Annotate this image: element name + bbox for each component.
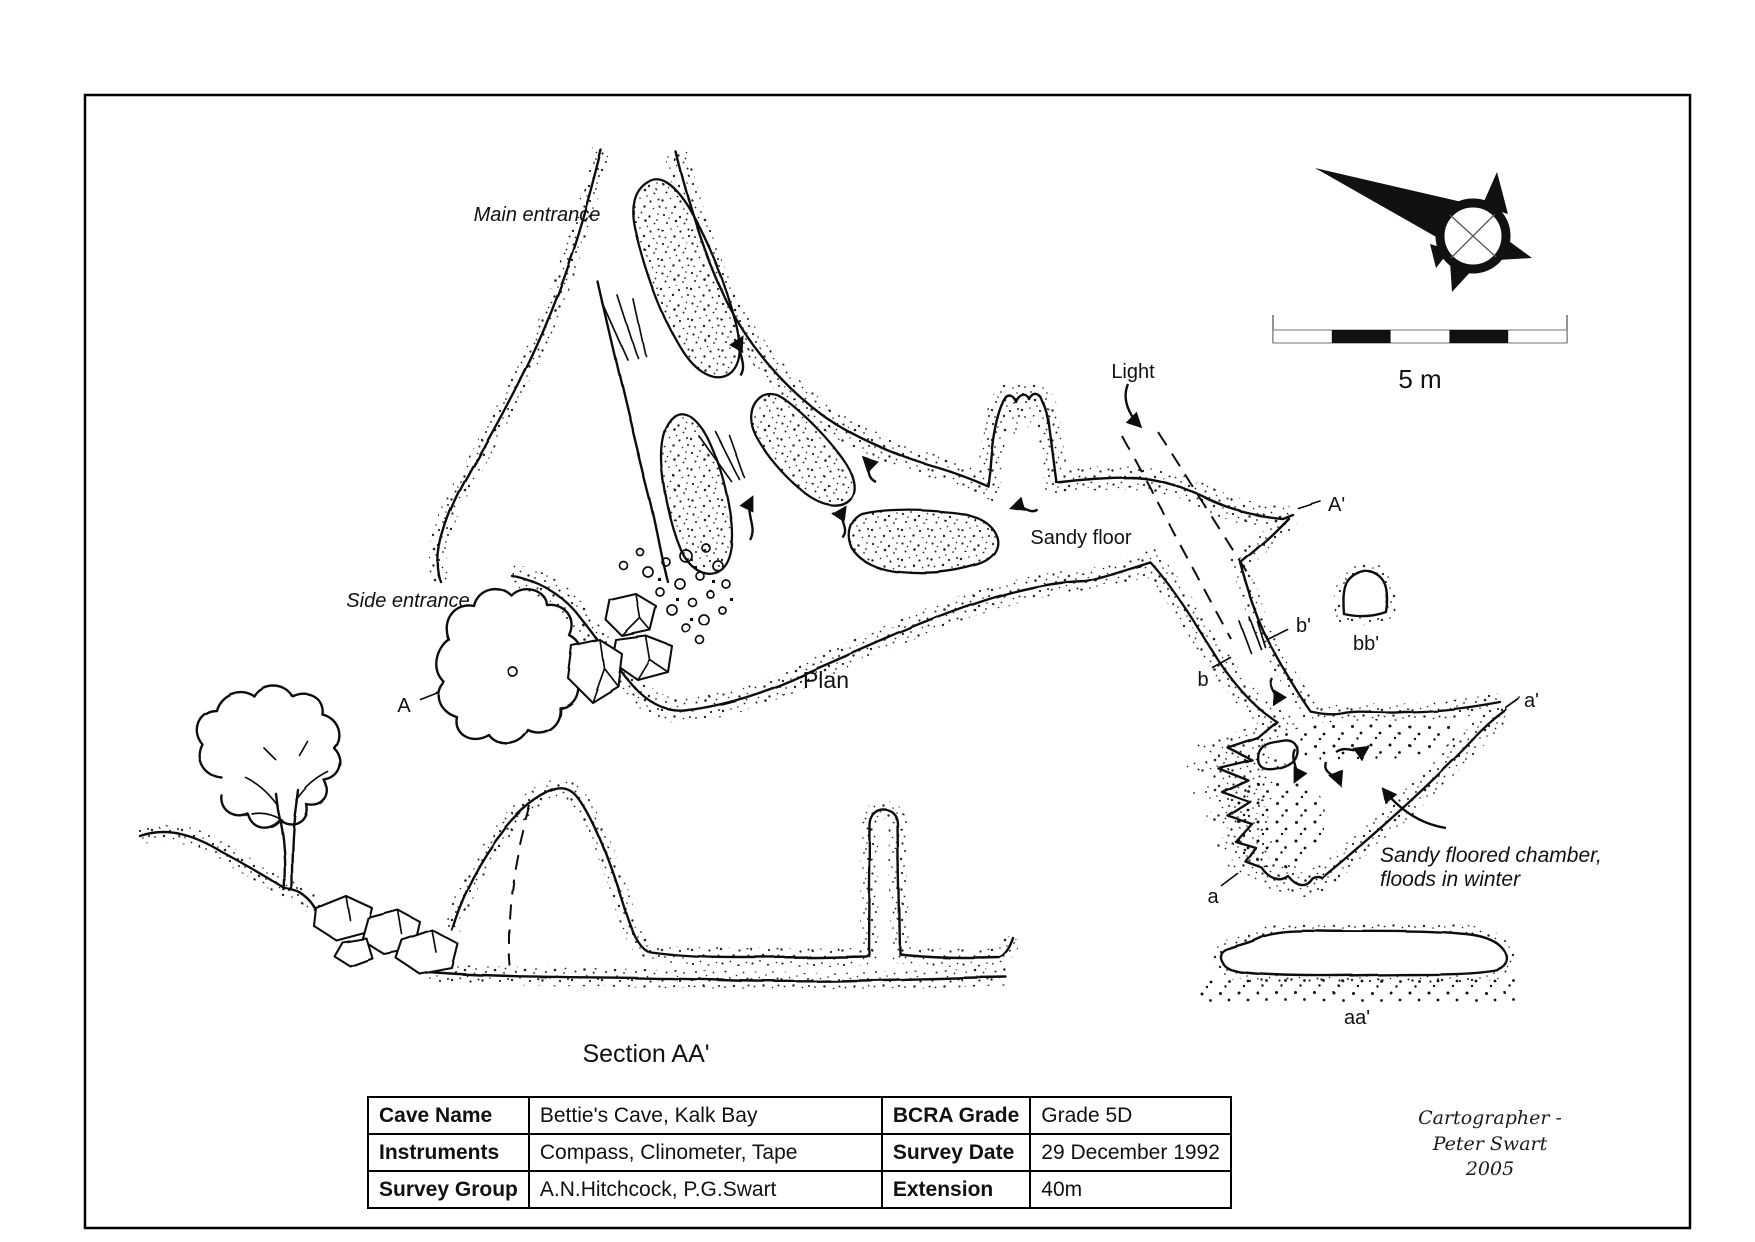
cell-instruments-value: Compass, Clinometer, Tape [529,1134,882,1171]
cell-cave-name-value: Bettie's Cave, Kalk Bay [529,1097,882,1134]
plan-view [420,150,1520,886]
cell-survey-date-value: 29 December 1992 [1030,1134,1231,1171]
marker-a: a [1207,886,1219,908]
label-chamber-note-2: floods in winter [1380,868,1521,891]
credit-line-1: Cartographer - Peter Swart [1390,1106,1590,1157]
label-section-title: Section AA' [582,1040,709,1068]
map-line-art [140,150,1520,1002]
cell-survey-group-value: A.N.Hitchcock, P.G.Swart [529,1171,882,1208]
marker-bb-prime: bb' [1353,633,1379,655]
marker-b: b [1197,669,1208,691]
marker-A: A [397,695,411,717]
cell-bcra-key: BCRA Grade [882,1097,1030,1134]
table-row: Cave Name Bettie's Cave, Kalk Bay BCRA G… [368,1097,1231,1134]
label-light: Light [1111,361,1155,383]
label-main-entrance: Main entrance [474,204,601,226]
label-aa: aa' [1344,1007,1370,1029]
cell-survey-group-key: Survey Group [368,1171,529,1208]
tree-trunk-dot [509,668,518,677]
bb-passage-outline [1343,571,1387,616]
cartographer-credit: Cartographer - Peter Swart 2005 [1390,1106,1590,1183]
light-pointer-arrow [1126,384,1140,426]
plan-wall-inner [598,282,668,582]
aa-sand-dots [1195,978,1520,1002]
label-plan-title: Plan [803,667,849,693]
table-row: Survey Group A.N.Hitchcock, P.G.Swart Ex… [368,1171,1231,1208]
info-table: Cave Name Bettie's Cave, Kalk Bay BCRA G… [367,1096,1232,1209]
scale-bar: 5 m [1273,315,1567,394]
marker-b-prime: b' [1296,615,1311,637]
aa-section-outline [1220,931,1507,976]
label-sandy-floor: Sandy floor [1030,527,1132,549]
cell-cave-name-key: Cave Name [368,1097,529,1134]
section-rocks [314,896,458,974]
survey-drawing: 5 m Main entrance Side entrance Light Sa… [0,0,1755,1242]
cell-survey-date-key: Survey Date [882,1134,1030,1171]
table-row: Instruments Compass, Clinometer, Tape Su… [368,1134,1231,1171]
section-cave-outline [452,789,1013,958]
scale-label: 5 m [1398,364,1441,394]
marker-a-prime: a' [1524,690,1539,712]
north-arrow-icon [1315,168,1532,292]
marker-A-prime: A' [1328,494,1345,516]
rock-pillars [633,179,998,573]
credit-line-2: 2005 [1390,1157,1590,1183]
cell-extension-key: Extension [882,1171,1030,1208]
cave-survey-sheet: 5 m Main entrance Side entrance Light Sa… [0,0,1755,1242]
label-side-entrance: Side entrance [346,590,469,612]
cell-instruments-key: Instruments [368,1134,529,1171]
cell-bcra-value: Grade 5D [1030,1097,1231,1134]
section-view [140,686,1013,982]
label-chamber-note-1: Sandy floored chamber, [1380,844,1602,867]
cell-extension-value: 40m [1030,1171,1231,1208]
